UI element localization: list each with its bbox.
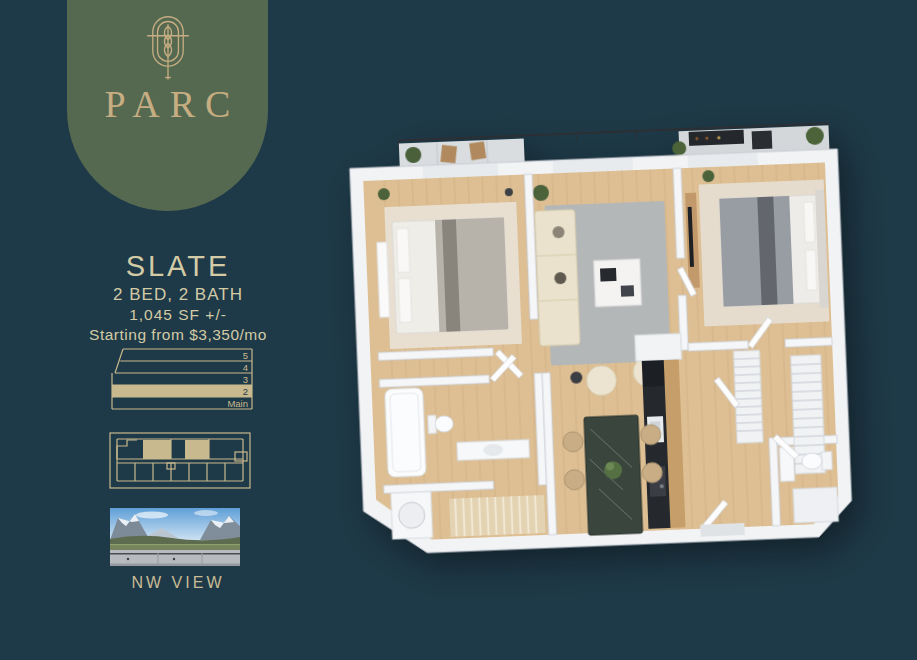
floor-label-4: 4 <box>243 362 248 373</box>
brochure-page: PARC SLATE 2 BED, 2 BATH 1,045 SF +/- St… <box>0 0 917 660</box>
view-photo <box>110 508 240 566</box>
floor-label-2-highlighted: 2 <box>243 386 248 397</box>
unit-beds-baths: 2 BED, 2 BATH <box>0 285 356 305</box>
floor-label-3: 3 <box>243 374 248 385</box>
dining-chair <box>642 462 663 483</box>
toilet <box>802 453 823 470</box>
dining-chair <box>640 424 661 445</box>
unit-area: 1,045 SF +/- <box>0 306 356 324</box>
unit-name: SLATE <box>0 250 356 283</box>
building-key-plan <box>109 432 251 489</box>
entry-threshold <box>700 523 744 537</box>
floor-stack-diagram: 5 4 3 2 Main <box>107 348 253 410</box>
floor-label-main: Main <box>227 398 248 409</box>
floor-label-5: 5 <box>243 350 248 361</box>
grill <box>752 131 773 150</box>
unit-price: Starting from $3,350/mo <box>0 326 356 344</box>
view-direction-label: NW VIEW <box>0 574 356 592</box>
dining-chair <box>563 431 584 452</box>
bedroom-1 <box>375 183 522 350</box>
sidebar: SLATE 2 BED, 2 BATH 1,045 SF +/- Startin… <box>0 0 356 660</box>
unit-location-cell-2 <box>185 440 209 459</box>
bedroom-2 <box>684 166 829 327</box>
floor-plan-rendering <box>326 107 906 629</box>
dining-chair <box>564 469 585 490</box>
coffee-table <box>594 259 642 307</box>
toilet <box>435 416 454 433</box>
bathtub <box>385 388 427 477</box>
unit-location-cell <box>143 440 171 459</box>
highlighted-floor-bar <box>112 385 252 397</box>
shower-nook <box>793 487 838 523</box>
